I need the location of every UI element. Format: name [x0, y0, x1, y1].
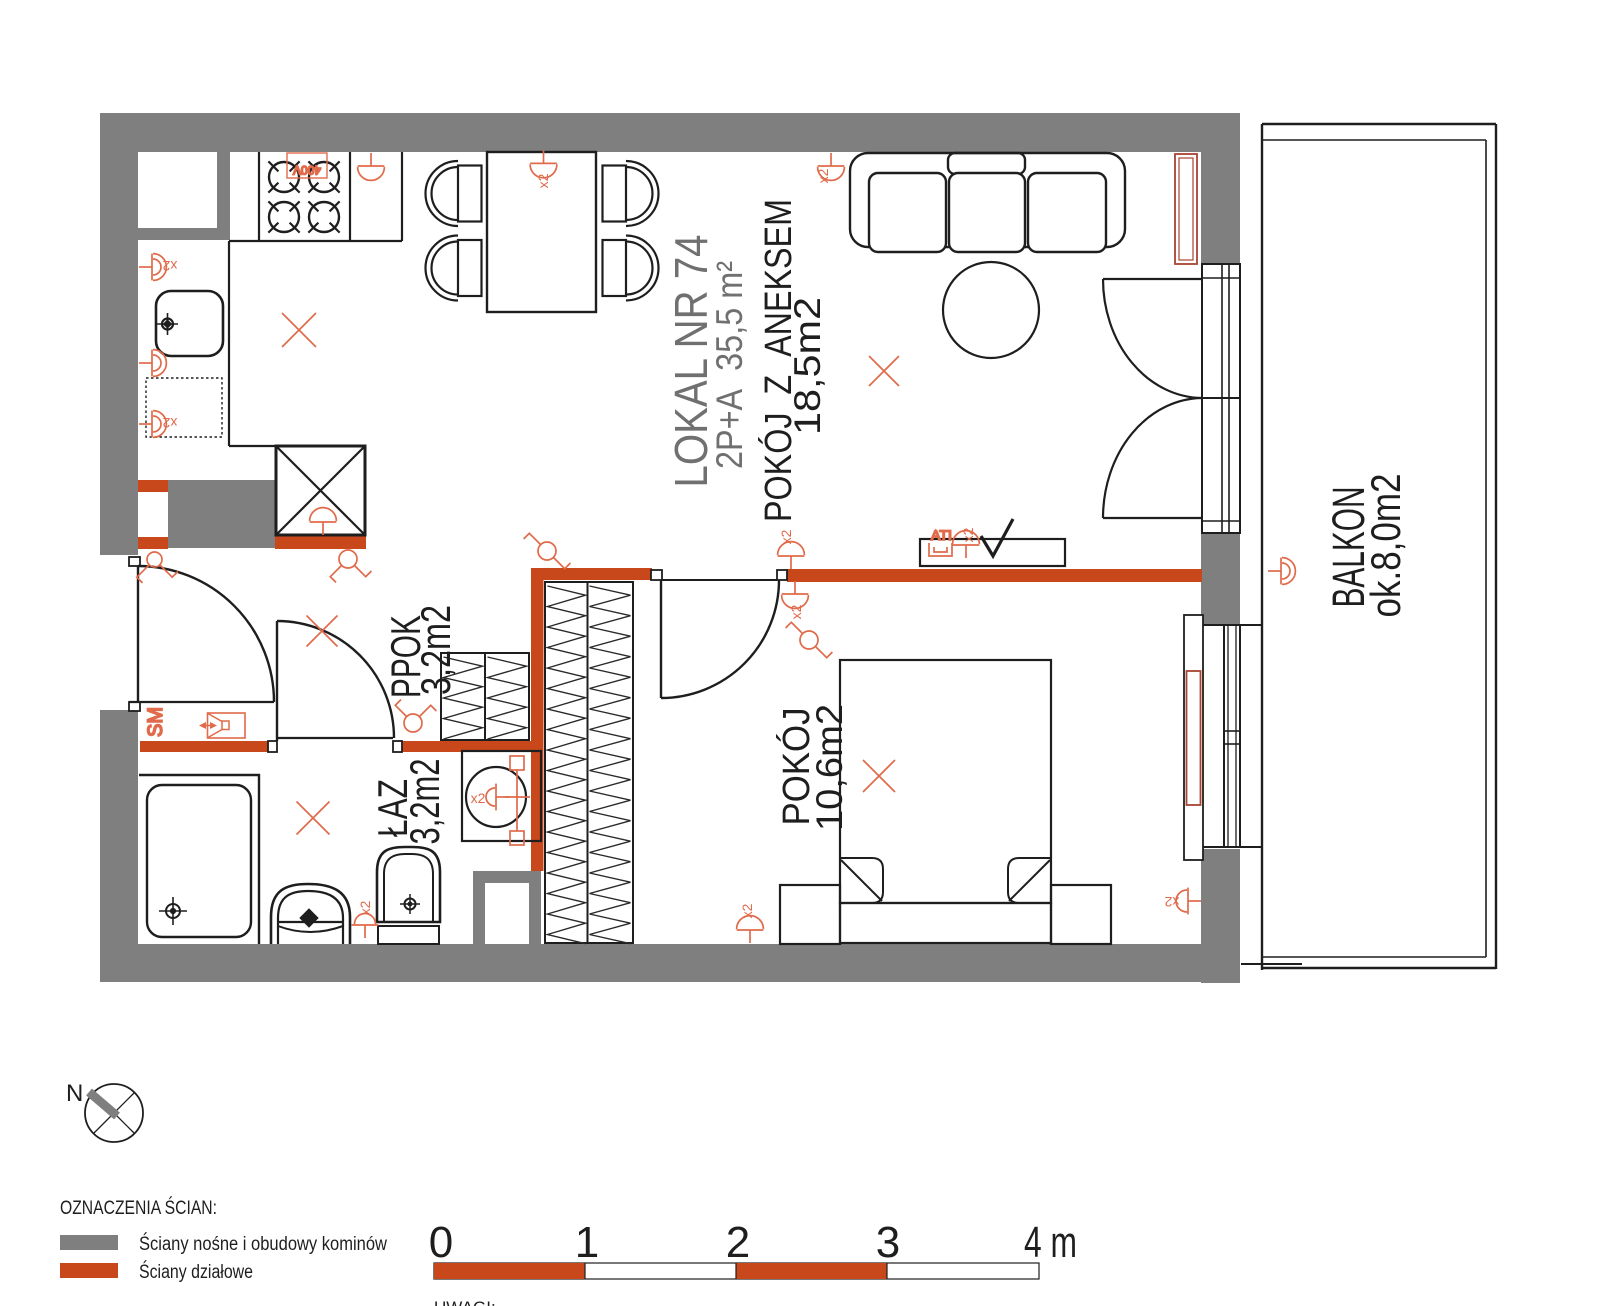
- svg-text:x2: x2: [162, 258, 177, 274]
- svg-text:UWAGI:: UWAGI:: [434, 1298, 496, 1306]
- svg-text:x2: x2: [815, 168, 831, 183]
- svg-text:4 m: 4 m: [1024, 1218, 1077, 1267]
- svg-text:0: 0: [429, 1218, 453, 1267]
- svg-text:x2: x2: [788, 604, 804, 619]
- svg-text:3,2m2: 3,2m2: [401, 759, 448, 845]
- svg-text:2: 2: [726, 1218, 750, 1267]
- svg-text:x2: x2: [1164, 894, 1179, 910]
- svg-text:1: 1: [575, 1218, 599, 1267]
- svg-text:Ściany nośne i obudowy kominów: Ściany nośne i obudowy kominów: [139, 1233, 387, 1255]
- svg-text:x2: x2: [471, 790, 486, 806]
- svg-text:x2: x2: [960, 527, 976, 542]
- svg-text:x2: x2: [535, 173, 551, 188]
- svg-text:x2: x2: [778, 529, 794, 544]
- svg-text:2P+A 35,5 m²: 2P+A 35,5 m²: [709, 261, 750, 469]
- svg-text:3: 3: [876, 1218, 900, 1267]
- svg-text:SM: SM: [144, 707, 167, 737]
- svg-text:OZNACZENIA ŚCIAN:: OZNACZENIA ŚCIAN:: [60, 1197, 217, 1219]
- svg-text:ok.8,0m2: ok.8,0m2: [1362, 474, 1409, 618]
- svg-text:3,2m2: 3,2m2: [412, 605, 459, 695]
- svg-text:400V: 400V: [293, 163, 321, 177]
- svg-text:x2: x2: [357, 900, 373, 915]
- svg-text:18,5m2: 18,5m2: [787, 297, 828, 435]
- svg-text:x2: x2: [739, 903, 755, 918]
- svg-text:10,6m2: 10,6m2: [809, 704, 850, 831]
- svg-text:Ściany działowe: Ściany działowe: [139, 1261, 253, 1283]
- svg-text:N: N: [66, 1080, 83, 1107]
- svg-text:x2: x2: [162, 415, 177, 431]
- svg-text:ATI: ATI: [931, 527, 952, 543]
